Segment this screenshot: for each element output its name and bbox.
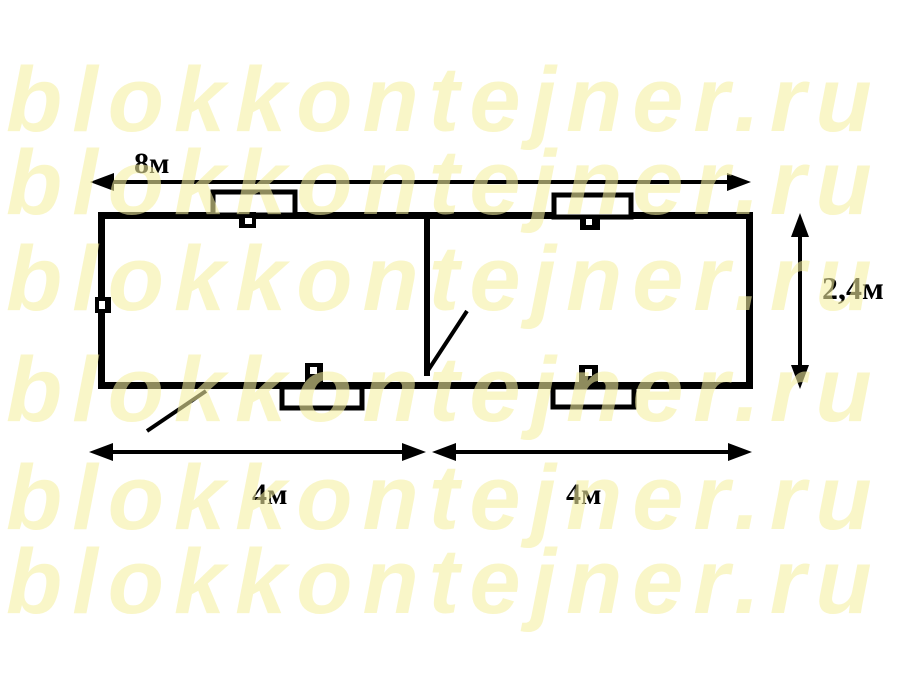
window-latch-marker-top-left — [239, 212, 256, 228]
window-top-right — [554, 195, 631, 217]
dimension-label-height: 2,4м — [822, 272, 884, 304]
dimension-arrow-left-width — [89, 443, 426, 461]
dimension-arrow-height — [791, 213, 809, 389]
door-swing-left-room — [147, 391, 206, 431]
window-bottom-left — [282, 387, 362, 408]
window-top-left — [213, 192, 295, 215]
floor-plan-page: 8м 2,4м 4м 4м blokkontejner.ru blokkonte… — [0, 0, 900, 675]
window-latch-marker-bottom-left — [305, 363, 323, 385]
dimension-arrow-right-width — [432, 443, 752, 461]
floor-plan-diagram — [0, 0, 900, 675]
dimension-label-left-width: 4м — [252, 480, 287, 510]
dimension-label-right-width: 4м — [566, 480, 601, 510]
door-swing-right-room — [427, 311, 467, 372]
dimension-arrow-total-width — [90, 173, 751, 191]
dimension-label-total-width: 8м — [134, 149, 169, 179]
left-wall-socket-marker — [95, 297, 111, 313]
window-latch-marker-bottom-right — [579, 365, 598, 387]
window-latch-marker-top-right — [580, 215, 600, 230]
window-bottom-right — [553, 387, 634, 407]
